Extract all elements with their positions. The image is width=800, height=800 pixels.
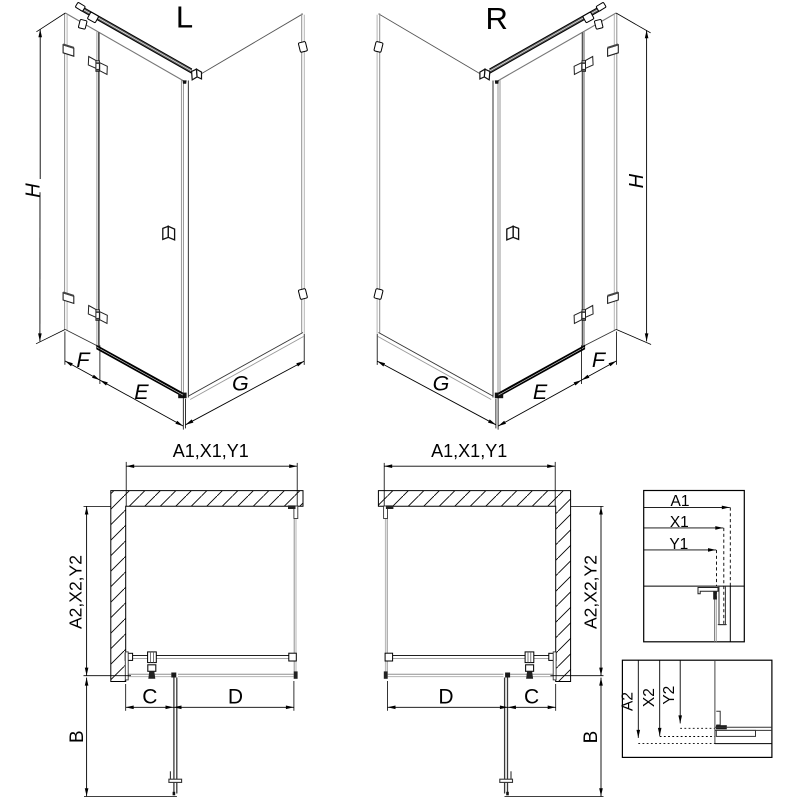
svg-text:D: D — [228, 685, 243, 708]
svg-text:X2: X2 — [641, 688, 658, 707]
svg-text:G: G — [433, 372, 450, 396]
svg-text:H: H — [22, 183, 44, 198]
svg-text:A1,X1,Y1: A1,X1,Y1 — [431, 441, 507, 461]
svg-text:C: C — [524, 685, 539, 708]
svg-text:A2,X2,Y2: A2,X2,Y2 — [65, 555, 85, 629]
svg-text:E: E — [134, 380, 149, 404]
svg-text:D: D — [438, 685, 453, 708]
svg-text:F: F — [592, 348, 607, 372]
svg-text:E: E — [533, 380, 548, 404]
svg-text:L: L — [176, 0, 193, 35]
svg-text:B: B — [581, 731, 602, 744]
svg-text:G: G — [232, 372, 249, 396]
svg-text:Y2: Y2 — [661, 686, 678, 705]
svg-text:A2,X2,Y2: A2,X2,Y2 — [581, 555, 601, 629]
svg-text:R: R — [486, 1, 508, 36]
svg-text:F: F — [76, 348, 91, 372]
svg-text:C: C — [142, 685, 157, 708]
svg-text:H: H — [626, 173, 648, 188]
svg-text:X1: X1 — [670, 514, 689, 531]
svg-text:A2: A2 — [620, 692, 637, 711]
svg-text:Y1: Y1 — [669, 536, 688, 553]
svg-text:B: B — [67, 730, 88, 743]
svg-text:A1,X1,Y1: A1,X1,Y1 — [173, 441, 249, 461]
